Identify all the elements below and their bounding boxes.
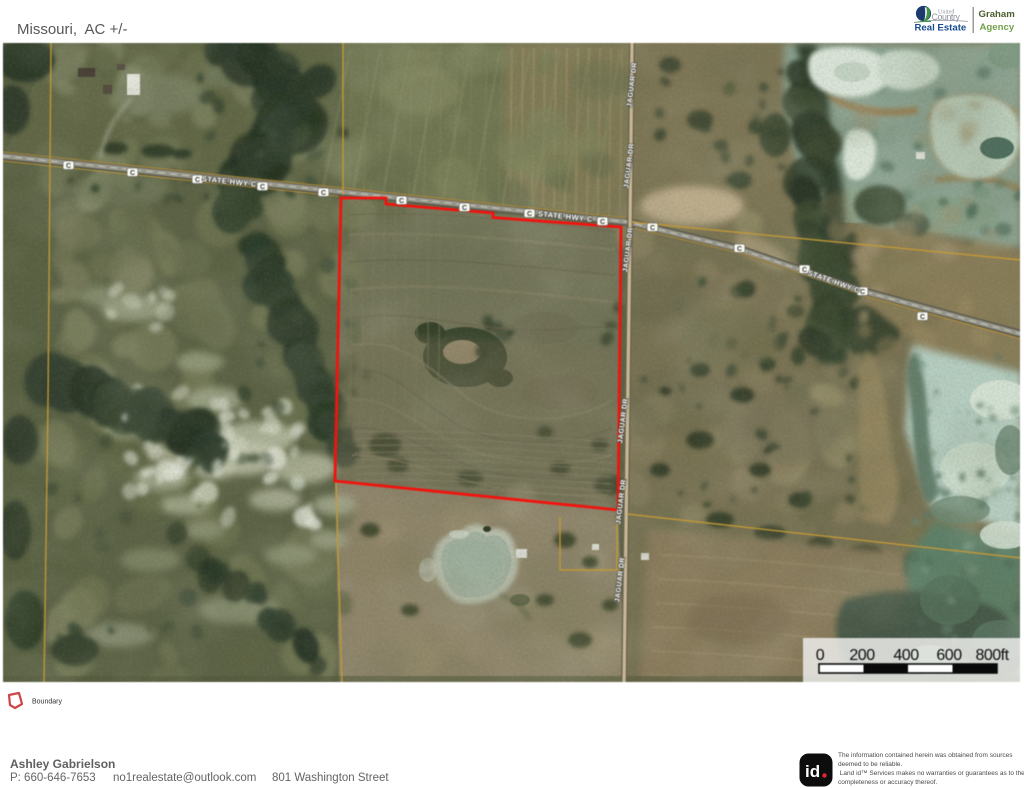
svg-text:C: C [399,198,404,205]
svg-text:C: C [600,219,605,226]
svg-text:Real Estate: Real Estate [915,23,967,34]
svg-text:C: C [260,184,265,191]
svg-text:C: C [195,177,200,184]
svg-text:Agency: Agency [980,22,1015,33]
svg-text:0: 0 [816,647,825,664]
svg-text:Graham: Graham [979,9,1015,20]
svg-text:C: C [66,163,71,170]
svg-text:C: C [802,267,807,274]
svg-text:600: 600 [936,647,962,664]
svg-text:C: C [860,289,865,296]
svg-text:C: C [130,170,135,177]
svg-text:800ft: 800ft [975,647,1009,664]
svg-text:C: C [321,190,326,197]
svg-text:C: C [527,211,532,218]
svg-text:200: 200 [849,647,875,664]
svg-text:C: C [920,314,925,321]
svg-text:Boundary: Boundary [32,699,62,706]
svg-text:C: C [462,205,467,212]
svg-text:id: id [805,762,820,781]
svg-text:C: C [650,225,655,232]
svg-text:400: 400 [893,647,919,664]
svg-text:C: C [737,246,742,253]
